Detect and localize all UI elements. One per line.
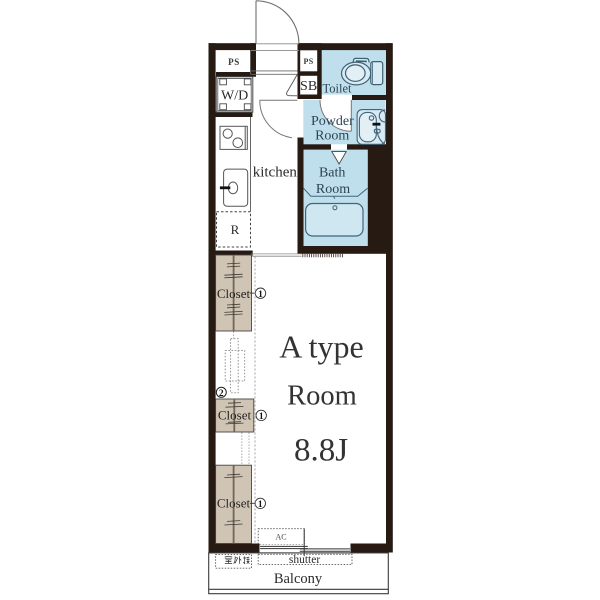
svg-text:kitchen: kitchen — [253, 164, 298, 180]
svg-text:Balcony: Balcony — [274, 571, 323, 587]
svg-text:Closet: Closet — [217, 286, 251, 301]
svg-text:Bath: Bath — [319, 165, 345, 180]
svg-text:shutter: shutter — [289, 554, 320, 566]
svg-text:PS: PS — [304, 57, 314, 66]
svg-text:1: 1 — [259, 412, 264, 422]
svg-text:R: R — [231, 222, 240, 237]
svg-text:Room: Room — [287, 381, 357, 412]
svg-text:8.8J: 8.8J — [294, 433, 348, 469]
svg-text:Room: Room — [315, 128, 349, 143]
svg-text:Closet: Closet — [218, 407, 252, 422]
svg-text:SB: SB — [300, 79, 317, 94]
svg-text:Closet: Closet — [217, 495, 251, 510]
svg-text:W/D: W/D — [221, 89, 248, 104]
svg-text:1: 1 — [258, 290, 263, 300]
svg-text:Powder: Powder — [311, 114, 354, 129]
svg-text:2: 2 — [219, 389, 224, 399]
svg-text:A type: A type — [279, 329, 363, 365]
svg-text:AC: AC — [275, 533, 286, 542]
svg-text:1: 1 — [258, 500, 263, 510]
svg-text:PS: PS — [228, 57, 240, 67]
svg-text:Toilet: Toilet — [323, 82, 353, 96]
svg-text:Room: Room — [316, 182, 350, 197]
